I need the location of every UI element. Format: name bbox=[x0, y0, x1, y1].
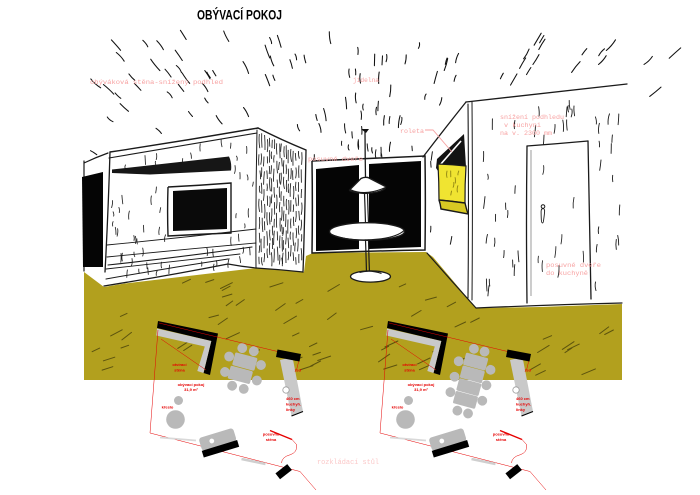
svg-text:otvírací: otvírací bbox=[402, 362, 417, 367]
svg-text:stěna: stěna bbox=[266, 437, 277, 442]
svg-text:otvírací: otvírací bbox=[172, 362, 187, 367]
svg-text:snížení podhledu: snížení podhledu bbox=[500, 114, 564, 122]
svg-text:posuvné dveře: posuvné dveře bbox=[546, 262, 601, 270]
svg-text:linky: linky bbox=[286, 407, 296, 412]
svg-text:31,9 m²: 31,9 m² bbox=[184, 387, 198, 392]
svg-text:zeď: zeď bbox=[525, 369, 532, 373]
svg-text:na v. 2300 mm: na v. 2300 mm bbox=[500, 130, 552, 138]
svg-text:křeslo: křeslo bbox=[162, 405, 174, 410]
svg-text:jídelna: jídelna bbox=[353, 77, 379, 85]
svg-text:460 cm: 460 cm bbox=[286, 396, 300, 401]
svg-text:kuchyň.: kuchyň. bbox=[516, 402, 531, 407]
svg-text:stěna: stěna bbox=[404, 368, 415, 373]
svg-text:obýváková stěna-snížený podhle: obýváková stěna-snížený podhled bbox=[90, 79, 223, 87]
svg-text:stěna: stěna bbox=[496, 437, 507, 442]
svg-text:kuchyň.: kuchyň. bbox=[286, 402, 301, 407]
svg-text:460 cm: 460 cm bbox=[516, 396, 530, 401]
svg-text:posuvná: posuvná bbox=[263, 432, 280, 437]
svg-text:OBÝVACÍ POKOJ: OBÝVACÍ POKOJ bbox=[197, 8, 282, 23]
svg-text:posuvné dveře: posuvné dveře bbox=[308, 156, 363, 164]
svg-text:31,9 m²: 31,9 m² bbox=[414, 387, 428, 392]
svg-text:linky: linky bbox=[516, 407, 526, 412]
svg-text:křeslo: křeslo bbox=[392, 405, 404, 410]
svg-text:posuvná: posuvná bbox=[493, 432, 510, 437]
svg-text:stěna: stěna bbox=[174, 368, 185, 373]
svg-text:roleta: roleta bbox=[400, 128, 424, 136]
svg-text:rozkládací stůl: rozkládací stůl bbox=[317, 458, 379, 467]
svg-text:do kuchyně: do kuchyně bbox=[546, 270, 588, 278]
svg-text:zeď: zeď bbox=[295, 369, 302, 373]
svg-text:v kuchyni: v kuchyni bbox=[504, 122, 541, 130]
